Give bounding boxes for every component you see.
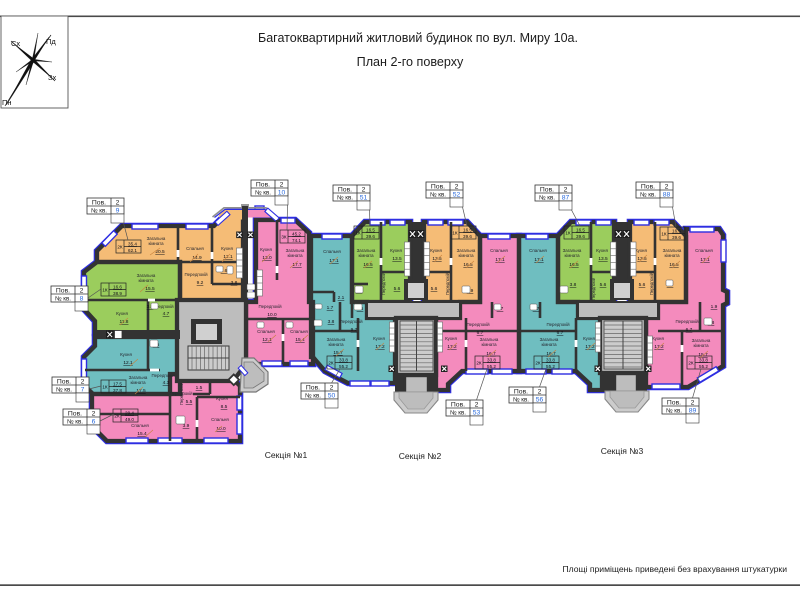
svg-text:2.1: 2.1	[338, 295, 345, 301]
svg-text:Спальня: Спальня	[529, 248, 547, 253]
svg-text:10: 10	[278, 190, 286, 197]
svg-text:Сх: Сх	[11, 39, 20, 48]
svg-text:Передпокій: Передпокій	[546, 322, 570, 327]
svg-text:Пов.: Пов.	[92, 200, 106, 207]
svg-text:№ кв.: № кв.	[55, 296, 71, 303]
svg-text:2: 2	[80, 288, 84, 295]
svg-text:5.5: 5.5	[186, 399, 193, 405]
svg-text:2: 2	[455, 184, 459, 191]
svg-text:Пов.: Пов.	[68, 411, 82, 418]
svg-text:6.7: 6.7	[557, 330, 564, 336]
svg-text:3.8: 3.8	[328, 319, 335, 325]
svg-text:9.7: 9.7	[351, 327, 358, 333]
svg-text:Кухня: Кухня	[116, 311, 128, 316]
svg-text:Передпокій: Передпокій	[591, 277, 596, 300]
svg-text:Кухня: Кухня	[373, 336, 385, 341]
svg-text:2К: 2К	[535, 361, 541, 366]
svg-text:4.3: 4.3	[163, 380, 170, 386]
svg-text:9.2: 9.2	[197, 280, 204, 286]
svg-text:Пд: Пд	[46, 37, 56, 46]
svg-text:74.1: 74.1	[292, 238, 301, 243]
svg-text:16.5: 16.5	[463, 227, 472, 232]
svg-text:33.8: 33.8	[487, 357, 496, 362]
svg-text:Передпокій: Передпокій	[179, 382, 184, 405]
svg-text:№ кв.: № кв.	[305, 393, 321, 400]
svg-text:1.9: 1.9	[711, 304, 718, 310]
svg-text:Пов.: Пов.	[451, 402, 465, 409]
svg-text:3.8: 3.8	[231, 280, 238, 286]
svg-text:Спальня: Спальня	[290, 329, 308, 334]
svg-text:№ кв.: № кв.	[640, 192, 656, 199]
svg-text:Спальня: Спальня	[131, 423, 149, 428]
svg-text:Кухня: Кухня	[430, 248, 442, 253]
svg-text:16.5: 16.5	[672, 228, 681, 233]
svg-text:№ кв.: № кв.	[450, 410, 466, 417]
svg-text:3К: 3К	[281, 235, 287, 240]
svg-text:Кухня: Кухня	[120, 352, 132, 357]
svg-text:№ кв.: № кв.	[430, 192, 446, 199]
svg-text:5.6: 5.6	[394, 286, 401, 292]
svg-text:№ кв.: № кв.	[56, 387, 72, 394]
svg-text:87: 87	[562, 195, 570, 202]
svg-text:2: 2	[92, 411, 96, 418]
svg-text:16.5: 16.5	[576, 227, 585, 232]
svg-text:Пов.: Пов.	[514, 389, 528, 396]
svg-text:2: 2	[116, 200, 120, 207]
svg-text:1К: 1К	[355, 231, 361, 236]
svg-text:Спальня: Спальня	[490, 248, 508, 253]
svg-text:55.2: 55.2	[487, 364, 496, 369]
svg-text:кімната: кімната	[481, 342, 497, 347]
svg-text:39.6: 39.6	[366, 234, 375, 239]
svg-text:Спальня: Спальня	[186, 246, 204, 251]
svg-text:55.2: 55.2	[699, 364, 708, 369]
svg-text:№ кв.: № кв.	[91, 208, 107, 215]
svg-text:1К: 1К	[565, 231, 571, 236]
svg-text:2: 2	[330, 385, 334, 392]
svg-text:6: 6	[92, 419, 96, 426]
svg-text:Спальня: Спальня	[211, 417, 229, 422]
svg-text:50: 50	[328, 393, 336, 400]
svg-text:№ кв.: № кв.	[337, 195, 353, 202]
svg-text:Передпокій: Передпокій	[381, 272, 386, 295]
svg-text:7: 7	[81, 387, 85, 394]
svg-text:52: 52	[453, 192, 461, 199]
svg-text:№ кв.: № кв.	[539, 195, 555, 202]
svg-text:Передпокій: Передпокій	[339, 319, 363, 324]
svg-text:кімната: кімната	[664, 253, 680, 258]
svg-text:2К: 2К	[114, 414, 120, 419]
svg-text:Пов.: Пов.	[306, 385, 320, 392]
svg-text:Пн: Пн	[2, 98, 12, 107]
svg-text:33.8: 33.8	[546, 357, 555, 362]
svg-text:1К: 1К	[102, 288, 108, 293]
svg-text:1.7: 1.7	[327, 305, 334, 311]
svg-text:45.2: 45.2	[292, 231, 301, 236]
svg-text:Пов.: Пов.	[56, 288, 70, 295]
svg-text:Передпокій: Передпокій	[258, 304, 282, 309]
svg-text:Спальня: Спальня	[257, 329, 275, 334]
svg-text:8: 8	[80, 296, 84, 303]
svg-text:33.8: 33.8	[339, 357, 348, 362]
svg-text:2: 2	[665, 184, 669, 191]
svg-text:2К: 2К	[117, 245, 123, 250]
svg-text:3.8: 3.8	[570, 282, 577, 288]
svg-text:кімната: кімната	[130, 380, 146, 385]
svg-text:Секція №3: Секція №3	[601, 446, 644, 456]
svg-text:51: 51	[360, 195, 368, 202]
svg-text:39.6: 39.6	[672, 235, 681, 240]
svg-text:кімната: кімната	[541, 342, 557, 347]
svg-text:39.6: 39.6	[576, 234, 585, 239]
svg-text:5.6: 5.6	[639, 282, 646, 288]
svg-text:5.6: 5.6	[431, 286, 438, 292]
svg-text:62.1: 62.1	[128, 248, 137, 253]
svg-text:5.6: 5.6	[600, 282, 607, 288]
svg-text:Секція №2: Секція №2	[399, 451, 442, 461]
svg-text:1К: 1К	[452, 231, 458, 236]
svg-text:Передпокій: Передпокій	[466, 322, 490, 327]
svg-text:9: 9	[116, 208, 120, 215]
svg-text:1К: 1К	[102, 385, 108, 390]
svg-text:Пов.: Пов.	[338, 187, 352, 194]
svg-text:кімната: кімната	[693, 343, 709, 348]
svg-text:Кухня: Кухня	[596, 248, 608, 253]
svg-text:37.8: 37.8	[113, 388, 122, 393]
svg-text:Кухня: Кухня	[216, 396, 228, 401]
svg-text:2: 2	[280, 182, 284, 189]
svg-text:2: 2	[538, 389, 542, 396]
svg-text:1К: 1К	[661, 232, 667, 237]
svg-text:Передпокій: Передпокій	[445, 272, 450, 295]
svg-text:56: 56	[536, 397, 544, 404]
svg-text:Кухня: Кухня	[260, 247, 272, 252]
svg-text:кімната: кімната	[138, 278, 154, 283]
svg-text:кімната: кімната	[328, 342, 344, 347]
svg-text:Кухня: Кухня	[635, 248, 647, 253]
svg-text:Багатоквартирний житловий буди: Багатоквартирний житловий будинок по вул…	[258, 30, 578, 45]
svg-text:49.0: 49.0	[125, 417, 134, 422]
svg-text:Кухня: Кухня	[390, 248, 402, 253]
svg-text:15.5: 15.5	[145, 286, 155, 292]
svg-text:1.5: 1.5	[196, 385, 203, 391]
svg-text:Пов.: Пов.	[641, 184, 655, 191]
svg-text:17.5: 17.5	[113, 381, 122, 386]
svg-text:Спальня: Спальня	[695, 248, 713, 253]
svg-text:55.2: 55.2	[546, 364, 555, 369]
svg-text:Кухня: Кухня	[445, 336, 457, 341]
svg-text:6.7: 6.7	[477, 330, 484, 336]
svg-text:2К: 2К	[476, 361, 482, 366]
svg-text:39.6: 39.6	[463, 234, 472, 239]
svg-text:Секція №1: Секція №1	[265, 450, 308, 460]
svg-text:38.9: 38.9	[113, 291, 122, 296]
svg-text:№ кв.: № кв.	[255, 190, 271, 197]
svg-text:Передпокій: Передпокій	[675, 319, 699, 324]
svg-text:Передпокій: Передпокій	[184, 272, 208, 277]
svg-text:Кухня: Кухня	[583, 336, 595, 341]
svg-text:2: 2	[564, 187, 568, 194]
svg-text:Кухня: Кухня	[221, 246, 233, 251]
svg-text:29.4: 29.4	[125, 410, 134, 415]
svg-text:Кухня: Кухня	[652, 336, 664, 341]
svg-text:Площі приміщень приведені без: Площі приміщень приведені без врахування…	[562, 564, 787, 574]
svg-text:кімната: кімната	[564, 253, 580, 258]
svg-text:2: 2	[691, 400, 695, 407]
svg-text:2: 2	[475, 402, 479, 409]
svg-text:кімната: кімната	[148, 241, 164, 246]
svg-text:2К: 2К	[688, 361, 694, 366]
svg-text:2: 2	[81, 379, 85, 386]
svg-text:13.5: 13.5	[392, 256, 402, 262]
svg-text:Пов.: Пов.	[431, 184, 445, 191]
svg-text:12.1: 12.1	[123, 360, 133, 366]
svg-text:4.7: 4.7	[163, 311, 170, 317]
svg-text:15.4: 15.4	[137, 431, 147, 437]
svg-text:План 2-го поверху: План 2-го поверху	[357, 55, 464, 69]
svg-text:Пов.: Пов.	[256, 182, 270, 189]
svg-text:16.5: 16.5	[366, 227, 375, 232]
svg-text:6.7: 6.7	[686, 327, 693, 333]
svg-text:2К: 2К	[328, 361, 334, 366]
svg-text:Передпокій: Передпокій	[649, 272, 654, 295]
svg-text:кімната: кімната	[358, 253, 374, 258]
svg-text:Пов.: Пов.	[667, 400, 681, 407]
svg-text:10.0: 10.0	[267, 312, 277, 318]
svg-text:Зх: Зх	[48, 73, 57, 82]
svg-text:Спальня: Спальня	[323, 249, 341, 254]
svg-text:№ кв.: № кв.	[67, 419, 83, 426]
svg-text:Пов.: Пов.	[540, 187, 554, 194]
svg-text:35.4: 35.4	[128, 241, 137, 246]
svg-text:№ кв.: № кв.	[513, 397, 529, 404]
svg-text:кімната: кімната	[458, 253, 474, 258]
svg-text:88: 88	[663, 192, 671, 199]
svg-text:Пов.: Пов.	[57, 379, 71, 386]
svg-text:89: 89	[689, 408, 697, 415]
svg-text:№ кв.: № кв.	[666, 408, 682, 415]
svg-text:Передпокій: Передпокій	[151, 373, 175, 378]
svg-text:33.8: 33.8	[699, 357, 708, 362]
svg-text:16.6: 16.6	[113, 284, 122, 289]
svg-text:2: 2	[362, 187, 366, 194]
svg-text:53: 53	[473, 410, 481, 417]
svg-text:55.2: 55.2	[339, 364, 348, 369]
svg-text:кімната: кімната	[287, 253, 303, 258]
svg-text:8.5: 8.5	[221, 404, 228, 410]
svg-text:13.5: 13.5	[598, 256, 608, 262]
